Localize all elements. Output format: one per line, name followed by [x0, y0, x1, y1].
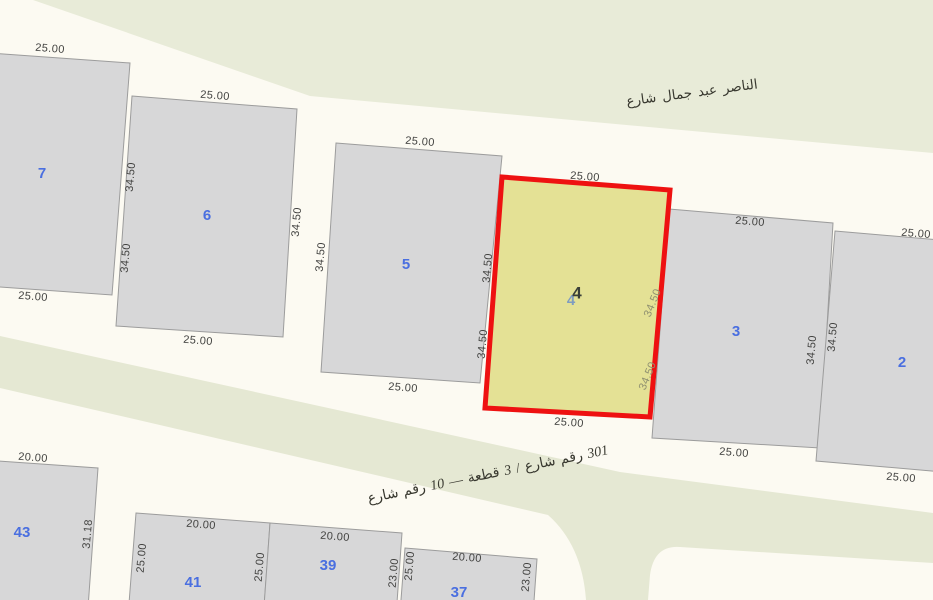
parcel-number-5: 5 [402, 256, 410, 273]
dimension-label-25-00-8: 25.00 [735, 215, 765, 229]
dimension-label-34-50-21: 34.50 [476, 329, 491, 359]
dimension-label-25-00-0: 25.00 [35, 42, 65, 56]
cadastral-map: 76532434139374425.0025.0025.0025.0025.00… [0, 0, 933, 600]
dimension-label-25-00-2: 25.00 [200, 89, 230, 103]
map-canvas: 76532434139374425.0025.0025.0025.0025.00… [0, 0, 933, 600]
parcel-number-41: 41 [185, 574, 202, 591]
dimension-label-34-50-18: 34.50 [290, 207, 305, 237]
dimension-label-25-00-4: 25.00 [405, 135, 435, 149]
dimension-label-25-00-9: 25.00 [719, 446, 749, 460]
parcel-number-37: 37 [451, 584, 468, 600]
dimension-label-23-00-27: 23.00 [387, 558, 402, 588]
dimension-label-34-50-22: 34.50 [826, 322, 841, 352]
dimension-label-25-00-28: 25.00 [403, 551, 418, 581]
parcel-number-43: 43 [14, 524, 31, 541]
parcel-number-7: 7 [38, 165, 46, 182]
parcel-2[interactable] [816, 231, 933, 476]
dimension-label-20-00-14: 20.00 [320, 530, 350, 544]
dimension-label-20-00-13: 20.00 [186, 518, 216, 532]
dimension-label-34-50-16: 34.50 [124, 162, 139, 192]
dimension-label-34-50-23: 34.50 [805, 335, 820, 365]
dimension-label-25-00-10: 25.00 [901, 227, 931, 241]
dimension-label-25-00-5: 25.00 [388, 381, 418, 395]
dimension-label-25-00-7: 25.00 [554, 416, 584, 430]
dimension-label-25-00-11: 25.00 [886, 471, 916, 485]
dimension-label-25-00-3: 25.00 [183, 334, 213, 348]
dimension-label-34-50-17: 34.50 [119, 243, 134, 273]
dimension-label-25-00-25: 25.00 [135, 543, 150, 573]
dimension-label-31-18-24: 31.18 [81, 519, 96, 549]
parcel-number-2: 2 [898, 354, 906, 371]
parcel-5[interactable] [321, 143, 502, 383]
dimension-label-23-00-29: 23.00 [520, 562, 535, 592]
parcel-number-6: 6 [203, 207, 211, 224]
parcel-number-dark-4: 4 [572, 283, 582, 302]
dimension-label-20-00-15: 20.00 [452, 551, 482, 565]
dimension-label-25-00-1: 25.00 [18, 290, 48, 304]
dimension-label-20-00-12: 20.00 [18, 451, 48, 465]
dimension-label-34-50-20: 34.50 [481, 253, 496, 283]
dimension-label-25-00-6: 25.00 [570, 170, 600, 184]
parcel-7[interactable] [0, 51, 130, 295]
parcel-number-39: 39 [320, 557, 337, 574]
parcel-3[interactable] [652, 209, 833, 448]
parcel-number-3: 3 [732, 323, 740, 340]
dimension-label-25-00-26: 25.00 [253, 552, 268, 582]
dimension-label-34-50-19: 34.50 [314, 242, 329, 272]
